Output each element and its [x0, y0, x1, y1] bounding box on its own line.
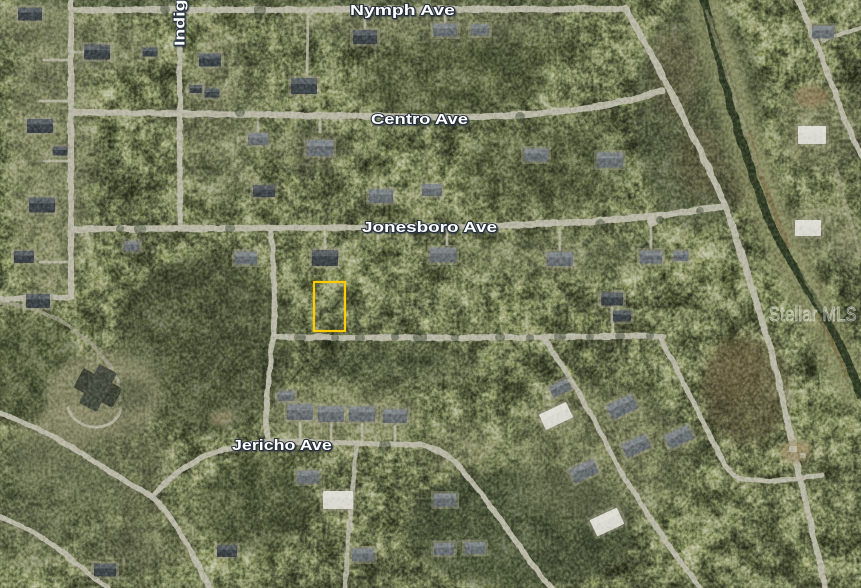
svg-text:Stellar MLS: Stellar MLS	[769, 304, 857, 326]
svg-text:Indig: Indig	[171, 0, 188, 46]
svg-text:Jonesboro Ave: Jonesboro Ave	[362, 219, 497, 236]
svg-text:Nymph Ave: Nymph Ave	[350, 1, 455, 18]
svg-text:Centro Ave: Centro Ave	[371, 111, 468, 128]
svg-text:Jericho Ave: Jericho Ave	[232, 437, 332, 453]
